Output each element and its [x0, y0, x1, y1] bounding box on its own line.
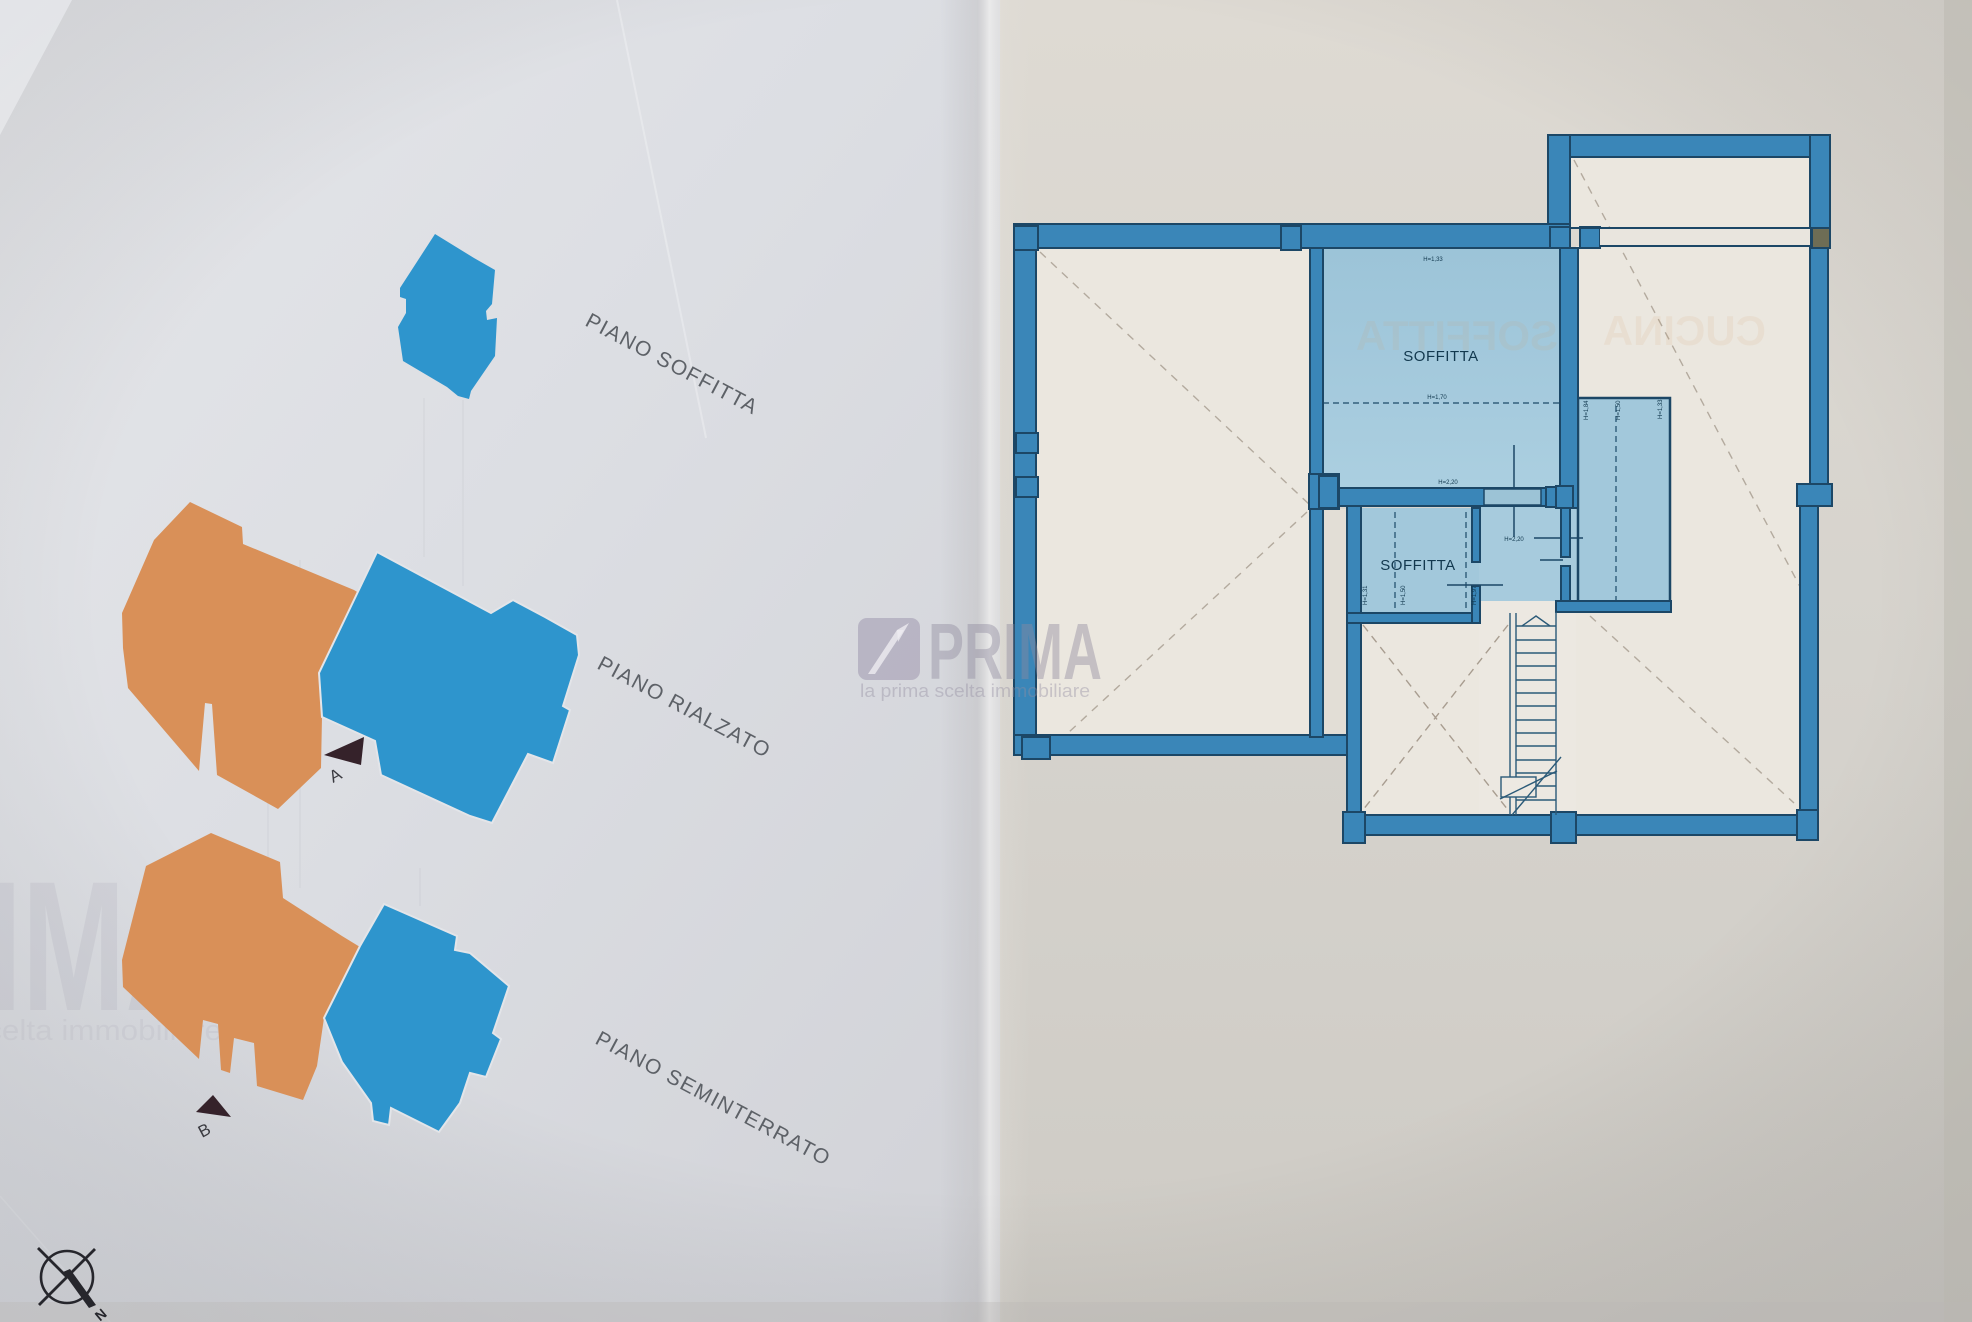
svg-text:H=1,33: H=1,33 — [1423, 257, 1443, 263]
svg-text:H=1,84: H=1,84 — [1584, 400, 1590, 420]
svg-text:H=1,50: H=1,50 — [1401, 585, 1407, 605]
svg-text:H=1,97: H=1,97 — [1472, 585, 1478, 605]
svg-text:H=1,50: H=1,50 — [1616, 400, 1622, 420]
svg-text:H=1,31: H=1,31 — [1363, 585, 1369, 605]
svg-text:H=1,70: H=1,70 — [1427, 395, 1447, 401]
svg-text:CUCINA: CUCINA — [1603, 307, 1766, 354]
svg-text:la prima scelta immobiliare: la prima scelta immobiliare — [860, 680, 1090, 701]
svg-text:H=2,20: H=2,20 — [1504, 537, 1524, 543]
svg-text:SOFFITTA: SOFFITTA — [1356, 312, 1558, 359]
svg-text:H=2,20: H=2,20 — [1438, 480, 1458, 486]
svg-text:SOFFITTA: SOFFITTA — [1380, 557, 1455, 574]
svg-text:H=1,33: H=1,33 — [1658, 399, 1664, 419]
